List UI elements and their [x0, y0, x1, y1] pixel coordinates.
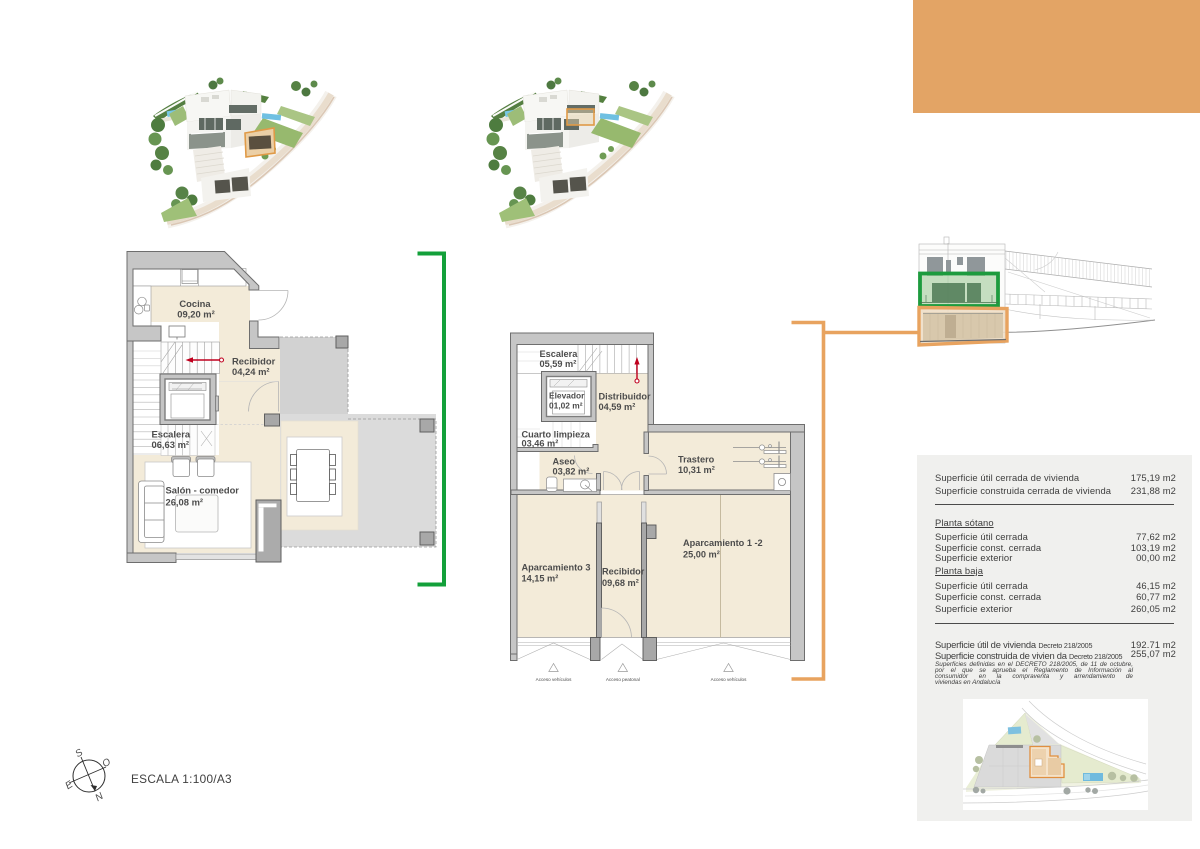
svg-text:Distribuidor: Distribuidor: [599, 392, 651, 402]
svg-text:Aseo: Aseo: [553, 457, 576, 467]
svg-text:S: S: [73, 747, 85, 760]
svg-text:Trastero: Trastero: [678, 455, 715, 465]
svg-text:25,00 m²: 25,00 m²: [683, 550, 720, 560]
svg-text:Salón - comedor: Salón - comedor: [166, 485, 240, 496]
svg-text:01,02 m²: 01,02 m²: [549, 401, 583, 411]
svg-text:Escalera: Escalera: [152, 429, 191, 440]
svg-text:26,08 m²: 26,08 m²: [166, 497, 204, 508]
svg-text:09,20 m²: 09,20 m²: [177, 309, 215, 320]
svg-text:Recibidor: Recibidor: [602, 567, 645, 577]
svg-text:Aparcamiento 1 -2: Aparcamiento 1 -2: [683, 538, 763, 548]
svg-text:Recibidor: Recibidor: [232, 356, 276, 367]
svg-text:N: N: [93, 790, 106, 804]
svg-text:Acceso peatonal: Acceso peatonal: [606, 677, 640, 682]
svg-text:04,24 m²: 04,24 m²: [232, 366, 270, 377]
svg-text:Elevador: Elevador: [549, 391, 585, 401]
svg-text:Acceso vehículos: Acceso vehículos: [536, 677, 572, 682]
svg-text:Escalera: Escalera: [540, 349, 579, 359]
svg-text:03,46 m²: 03,46 m²: [522, 439, 559, 449]
svg-text:05,59 m²: 05,59 m²: [540, 359, 577, 369]
svg-text:04,59 m²: 04,59 m²: [599, 402, 636, 412]
svg-text:03,82 m²: 03,82 m²: [553, 467, 590, 477]
svg-text:Cocina: Cocina: [179, 298, 211, 309]
svg-text:14,15 m²: 14,15 m²: [522, 574, 559, 584]
svg-text:Aparcamiento 3: Aparcamiento 3: [522, 563, 591, 573]
svg-text:09,68 m²: 09,68 m²: [602, 578, 639, 588]
svg-text:Acceso vehículos: Acceso vehículos: [711, 677, 747, 682]
svg-text:10,31 m²: 10,31 m²: [678, 465, 715, 475]
svg-text:06,63 m²: 06,63 m²: [152, 439, 190, 450]
